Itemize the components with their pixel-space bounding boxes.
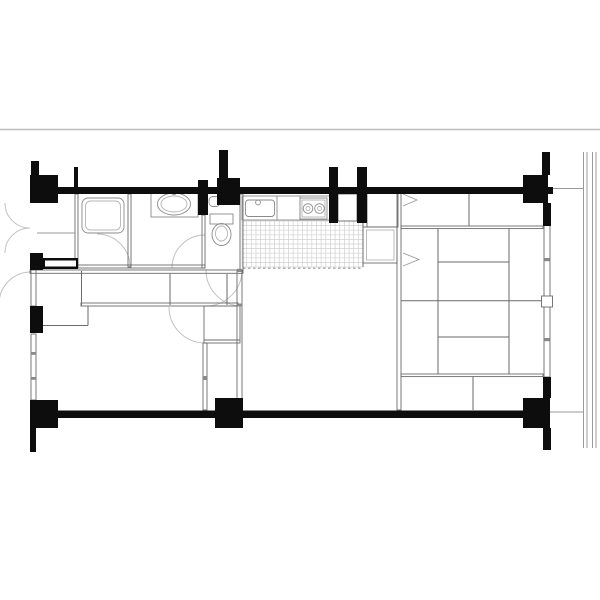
partition-wall [128, 194, 131, 267]
partition-wall [204, 306, 240, 343]
wall-insets [45, 261, 76, 267]
partition-wall [367, 192, 398, 227]
folding-door-marks [403, 194, 419, 266]
door-swing-arc [5, 228, 30, 253]
window-tick [544, 338, 550, 341]
window-ticks [31, 258, 550, 380]
wall-segment [523, 398, 550, 428]
toilet-bowl [212, 224, 231, 246]
wall-segment [30, 400, 58, 428]
partition-wall [78, 265, 205, 268]
wall-segment [198, 180, 208, 215]
wall-segment [30, 187, 553, 194]
wall-segment [30, 428, 36, 452]
wall-segment [219, 150, 228, 178]
folding-door-chevron [403, 253, 419, 266]
door-swing-arc [97, 234, 130, 267]
partition-wall [338, 194, 357, 221]
burner-left-inner [306, 207, 310, 211]
wall-segment [542, 152, 550, 175]
wall-segment [74, 167, 78, 187]
folding-door-chevron [403, 194, 417, 206]
door-swing-arc [5, 203, 30, 228]
vanity-basin-inner [161, 196, 187, 212]
window-handle [542, 296, 553, 307]
partition-wall [237, 270, 242, 402]
kitchen-faucet [256, 200, 261, 205]
window-tick [31, 352, 36, 355]
wall-segment [30, 253, 43, 270]
wall-inset [45, 261, 76, 267]
window-tick [544, 258, 550, 261]
wall-segment [30, 175, 58, 203]
kitchen-tile-floor [242, 221, 363, 267]
window-tick [31, 377, 36, 380]
wall-segment [543, 428, 551, 450]
wall-segment [543, 203, 551, 226]
wall-segment [215, 398, 243, 428]
partition-wall [31, 334, 36, 400]
wall-segment [357, 167, 367, 223]
partition-wall [202, 215, 205, 268]
partition-wall [363, 227, 397, 263]
partition-wall [240, 194, 243, 271]
window-tick [237, 269, 242, 272]
bathtub-inner [86, 201, 121, 230]
partition-wall [75, 194, 78, 267]
partition-wall [401, 374, 543, 377]
door-swing-arc [172, 235, 205, 268]
burner-right [315, 204, 325, 214]
partition-wall [30, 270, 243, 273]
door-swing-arc [0, 272, 31, 304]
wall-segment [30, 411, 550, 419]
burner-right-inner [318, 207, 322, 211]
toilet-bowl-inner [216, 226, 228, 241]
window-tick [203, 376, 207, 380]
wall-segment [31, 161, 39, 175]
stove [300, 198, 327, 219]
fixtures [82, 189, 553, 307]
partition-wall [401, 226, 543, 229]
burner-left [303, 204, 313, 214]
wall-segment [523, 175, 548, 203]
refrigerator-inner [367, 230, 395, 260]
door-swing-arc [169, 307, 205, 343]
floor-plan-drawing [0, 0, 600, 600]
floor-plan-page [0, 0, 600, 600]
wall-segment [329, 167, 338, 223]
wall-segment [30, 306, 43, 333]
wall-segment [217, 178, 240, 205]
bathtub-outer [82, 198, 124, 233]
wall-segment [543, 377, 551, 398]
partition-wall [31, 270, 36, 306]
window-tick [237, 304, 242, 307]
toilet-tank [210, 214, 233, 224]
